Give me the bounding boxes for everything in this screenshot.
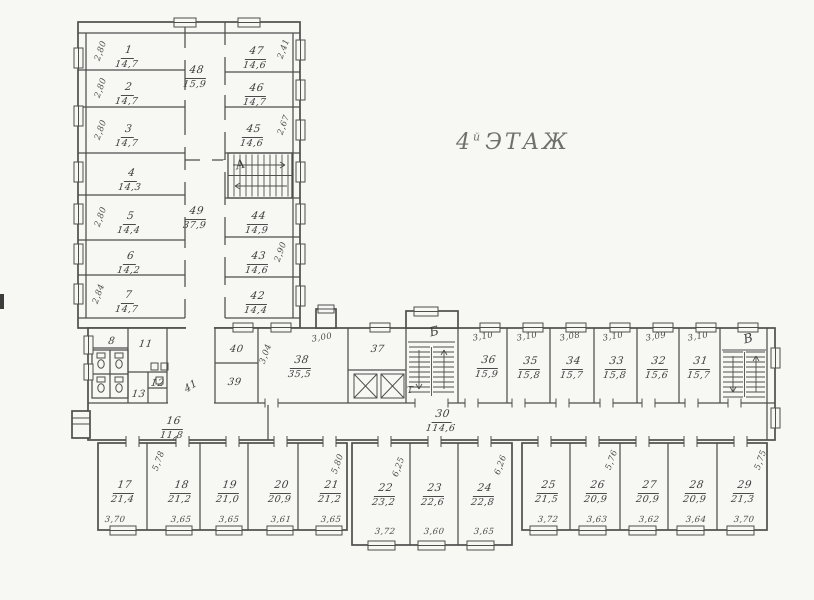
room-label-43: 4314,6 [244, 245, 272, 276]
room-number: 19 [218, 480, 240, 494]
room-area: 20,9 [682, 494, 707, 505]
room-number: 39 [224, 377, 245, 389]
room-number: 49 [185, 206, 207, 220]
room-number: 43 [247, 251, 269, 265]
room-area: 14,6 [239, 138, 264, 149]
room-number: 30 [431, 409, 453, 423]
room-label-30-corridor: 30114,6 [425, 403, 459, 434]
room-area: 14,6 [242, 60, 267, 71]
room-area: 14,7 [114, 138, 139, 149]
room-label-11: 11 [135, 333, 157, 351]
dim-room-20-width: 3,61 [270, 515, 292, 525]
room-area: 15,7 [686, 370, 711, 381]
room-number: 12 [147, 378, 168, 390]
room-area: 22,8 [470, 497, 495, 508]
room-area: 21,4 [110, 494, 135, 505]
room-number: 1 [121, 45, 136, 59]
room-label-40: 40 [226, 338, 248, 356]
room-number: 47 [245, 46, 267, 60]
room-label-34: 3415,7 [559, 350, 587, 381]
room-area: 14,7 [114, 59, 139, 70]
room-label-1: 114,7 [114, 39, 142, 70]
room-number: 38 [290, 355, 312, 369]
room-area: 15,9 [182, 79, 207, 90]
room-number: 37 [367, 344, 388, 356]
exterior-walls [72, 22, 775, 545]
dim-room-18-width: 3,65 [170, 515, 192, 525]
room-area: 14,3 [117, 182, 142, 193]
room-label-7: 714,7 [114, 284, 142, 315]
room-label-27: 2720,9 [635, 474, 663, 505]
room-label-6: 614,2 [116, 245, 144, 276]
room-area: 37,9 [182, 220, 207, 231]
room-label-35: 3515,8 [516, 350, 544, 381]
room-label-24: 2422,8 [470, 477, 498, 508]
room-number: 13 [128, 389, 149, 401]
room-area: 14,7 [242, 97, 267, 108]
room-label-13: 13 [128, 383, 150, 401]
room-label-37: 37 [367, 338, 389, 356]
room-area: 35,5 [287, 369, 312, 380]
room-number: 21 [320, 480, 342, 494]
dim-room-27-width: 3,62 [638, 515, 660, 525]
floor-number: 4 [456, 130, 473, 155]
room-number: 11 [135, 339, 156, 351]
room-label-36: 3615,9 [474, 349, 502, 380]
room-number: 46 [245, 83, 267, 97]
dim-room-21-width: 3,65 [320, 515, 342, 525]
floor-title: 4йЭТАЖ [456, 130, 570, 155]
floor-plan-page: 4йЭТАЖ 114,7 214,7 314,7 414,3 514,4 614… [0, 0, 814, 600]
room-area: 21,2 [317, 494, 342, 505]
room-area: 20,9 [267, 494, 292, 505]
dim-room-25-width: 3,72 [537, 515, 559, 525]
room-number: 3 [121, 124, 136, 138]
room-number: 25 [537, 480, 559, 494]
room-label-22: 2223,2 [371, 477, 399, 508]
room-area: 23,2 [371, 497, 396, 508]
room-label-31: 3115,7 [686, 350, 714, 381]
room-label-44: 4414,9 [244, 205, 272, 236]
room-area: 20,9 [583, 494, 608, 505]
room-number: 24 [473, 483, 495, 497]
room-number: 22 [374, 483, 396, 497]
room-area: 22,6 [420, 497, 445, 508]
room-label-17: 1721,4 [110, 474, 138, 505]
room-label-45: 4514,6 [239, 118, 267, 149]
dim-room-26-width: 3,63 [586, 515, 608, 525]
dim-room-19-width: 3,65 [218, 515, 240, 525]
room-area: 14,7 [114, 304, 139, 315]
floor-suffix: й [473, 131, 480, 144]
room-label-46: 4614,7 [242, 77, 270, 108]
room-number: 26 [586, 480, 608, 494]
room-label-23: 2322,6 [420, 477, 448, 508]
room-area: 15,9 [474, 369, 499, 380]
room-label-5: 514,4 [116, 205, 144, 236]
room-label-49: 4937,9 [182, 200, 210, 231]
room-number: 7 [121, 290, 136, 304]
room-label-12: 12 [147, 372, 169, 390]
room-label-16: 1611,8 [159, 410, 187, 441]
room-label-20: 2020,9 [267, 474, 295, 505]
room-number: 45 [242, 124, 264, 138]
room-number: 36 [477, 355, 499, 369]
dim-room-17-width: 3,70 [104, 515, 126, 525]
room-number: 29 [733, 480, 755, 494]
room-number: 27 [638, 480, 660, 494]
room-label-33: 3315,8 [602, 350, 630, 381]
room-area: 21,3 [730, 494, 755, 505]
dim-room-29-width: 3,70 [733, 515, 755, 525]
room-number: 48 [185, 65, 207, 79]
room-area: 20,9 [635, 494, 660, 505]
dim-room-22-width: 3,72 [374, 527, 396, 537]
room-area: 14,7 [114, 96, 139, 107]
room-label-2: 214,7 [114, 76, 142, 107]
room-label-4: 414,3 [117, 162, 145, 193]
room-number: 16 [162, 416, 184, 430]
floor-word: ЭТАЖ [485, 130, 570, 155]
room-number: 34 [562, 356, 584, 370]
room-label-32: 3215,6 [644, 350, 672, 381]
room-label-19: 1921,0 [215, 474, 243, 505]
room-area: 21,0 [215, 494, 240, 505]
dim-room-28-width: 3,64 [685, 515, 707, 525]
room-label-18: 1821,2 [167, 474, 195, 505]
room-number: 28 [685, 480, 707, 494]
room-label-48: 4815,9 [182, 59, 210, 90]
room-number: 32 [647, 356, 669, 370]
room-label-42: 4214,4 [243, 285, 271, 316]
room-area: 14,4 [116, 225, 141, 236]
t-mark-label: Т [407, 386, 413, 396]
room-area: 14,9 [244, 225, 269, 236]
room-area: 114,6 [425, 423, 456, 434]
room-area: 14,6 [244, 265, 269, 276]
room-area: 14,4 [243, 305, 268, 316]
room-number: 17 [113, 480, 135, 494]
room-number: 44 [247, 211, 269, 225]
room-label-29: 2921,3 [730, 474, 758, 505]
room-number: 42 [246, 291, 268, 305]
room-number: 8 [104, 336, 119, 348]
room-area: 15,7 [559, 370, 584, 381]
room-number: 23 [423, 483, 445, 497]
room-number: 40 [226, 344, 247, 356]
dim-room-23-width: 3,60 [423, 527, 445, 537]
room-area: 14,2 [116, 265, 141, 276]
room-number: 31 [689, 356, 711, 370]
dim-room-24-width: 3,65 [473, 527, 495, 537]
room-label-38: 3835,5 [287, 349, 315, 380]
room-label-39: 39 [224, 371, 246, 389]
room-number: 20 [270, 480, 292, 494]
room-area: 11,8 [159, 430, 184, 441]
room-label-8: 8 [104, 330, 119, 348]
room-area: 15,6 [644, 370, 669, 381]
room-number: 2 [121, 82, 136, 96]
room-number: 18 [170, 480, 192, 494]
room-area: 15,8 [516, 370, 541, 381]
room-label-47: 4714,6 [242, 40, 270, 71]
room-label-26: 2620,9 [583, 474, 611, 505]
room-area: 21,2 [167, 494, 192, 505]
room-label-21: 2121,2 [317, 474, 345, 505]
room-number: 4 [124, 168, 139, 182]
scan-artifact [0, 294, 4, 309]
room-label-28: 2820,9 [682, 474, 710, 505]
room-label-3: 314,7 [114, 118, 142, 149]
room-number: 5 [123, 211, 138, 225]
room-number: 6 [123, 251, 138, 265]
room-label-25: 2521,5 [534, 474, 562, 505]
room-area: 15,8 [602, 370, 627, 381]
room-area: 21,5 [534, 494, 559, 505]
room-number: 33 [605, 356, 627, 370]
room-number: 35 [519, 356, 541, 370]
